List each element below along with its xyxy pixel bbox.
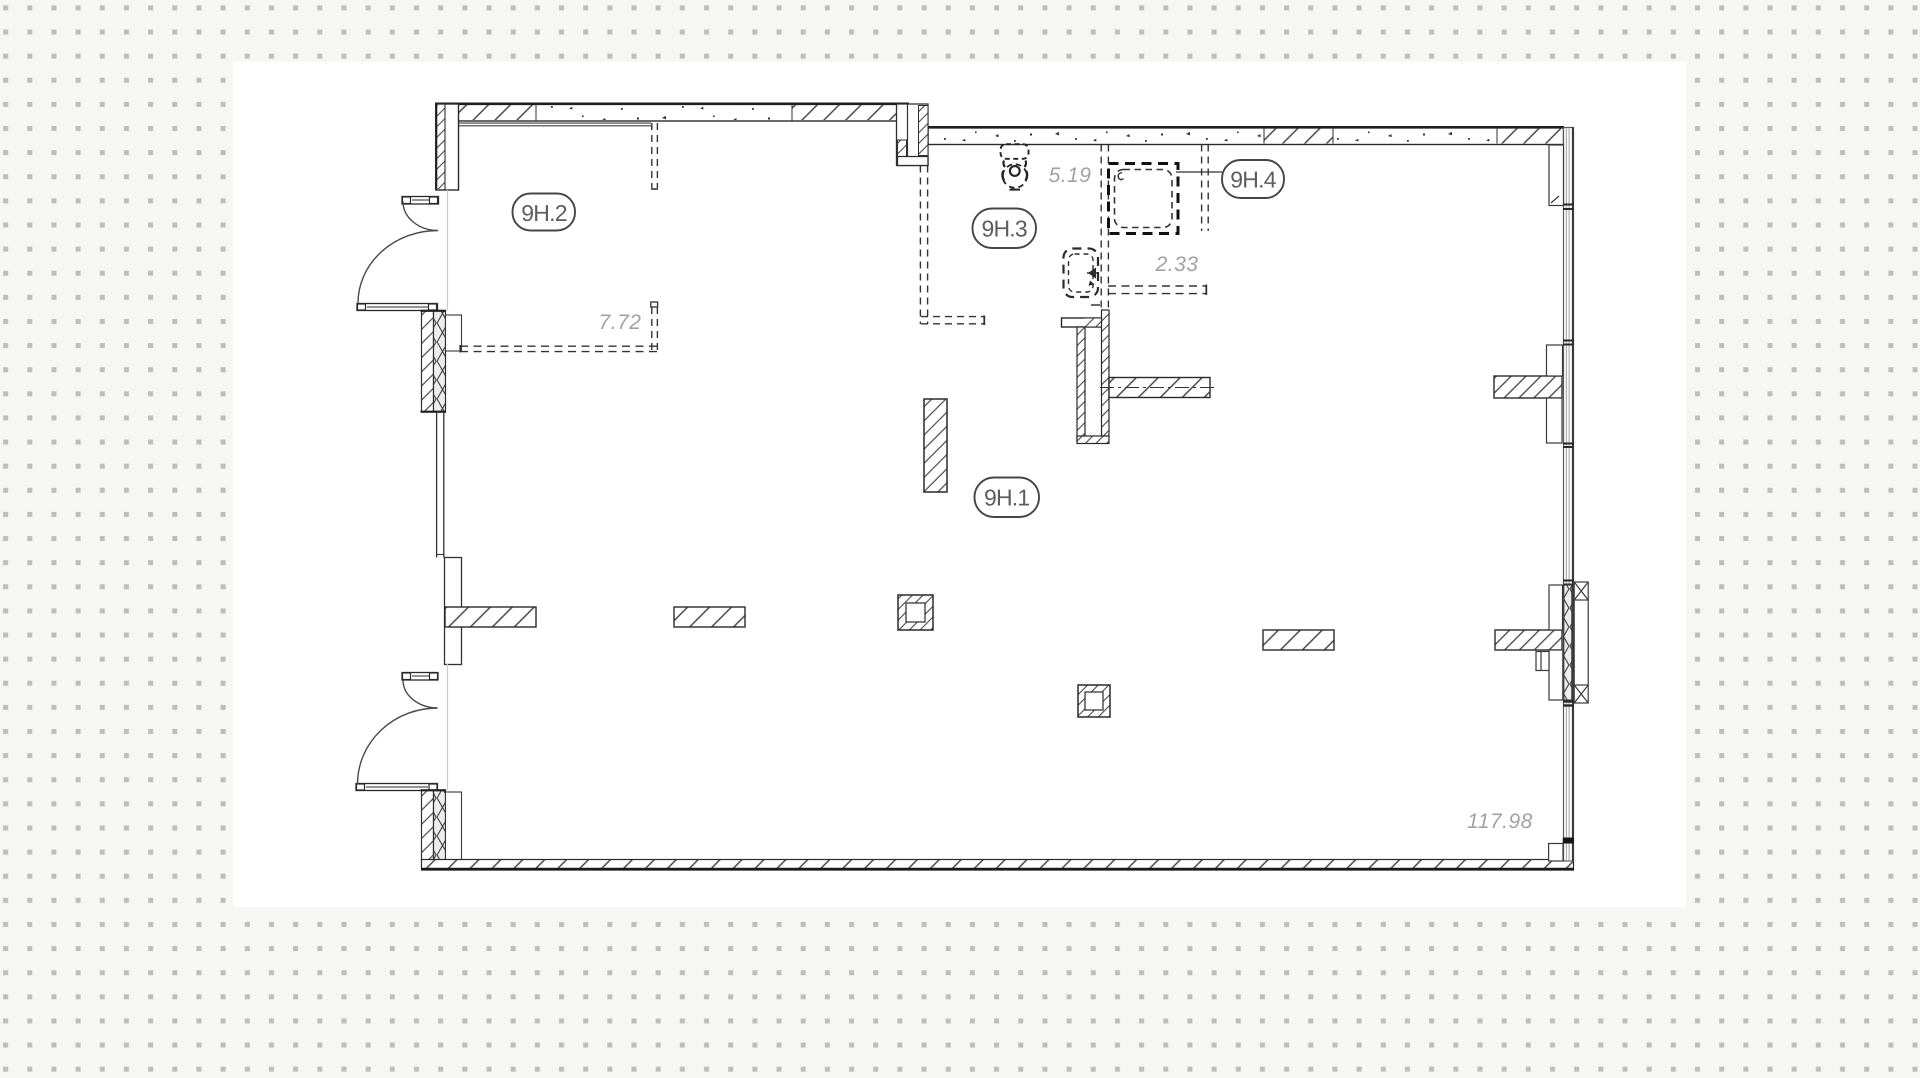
svg-text:2.33: 2.33 xyxy=(1155,253,1199,276)
svg-text:9H.2: 9H.2 xyxy=(521,200,566,226)
svg-text:9H.1: 9H.1 xyxy=(984,485,1029,511)
svg-text:117.98: 117.98 xyxy=(1467,810,1533,833)
svg-text:5.19: 5.19 xyxy=(1049,164,1092,187)
svg-text:7.72: 7.72 xyxy=(599,311,642,334)
svg-text:9H.4: 9H.4 xyxy=(1230,167,1276,193)
svg-text:9H.3: 9H.3 xyxy=(982,216,1027,242)
